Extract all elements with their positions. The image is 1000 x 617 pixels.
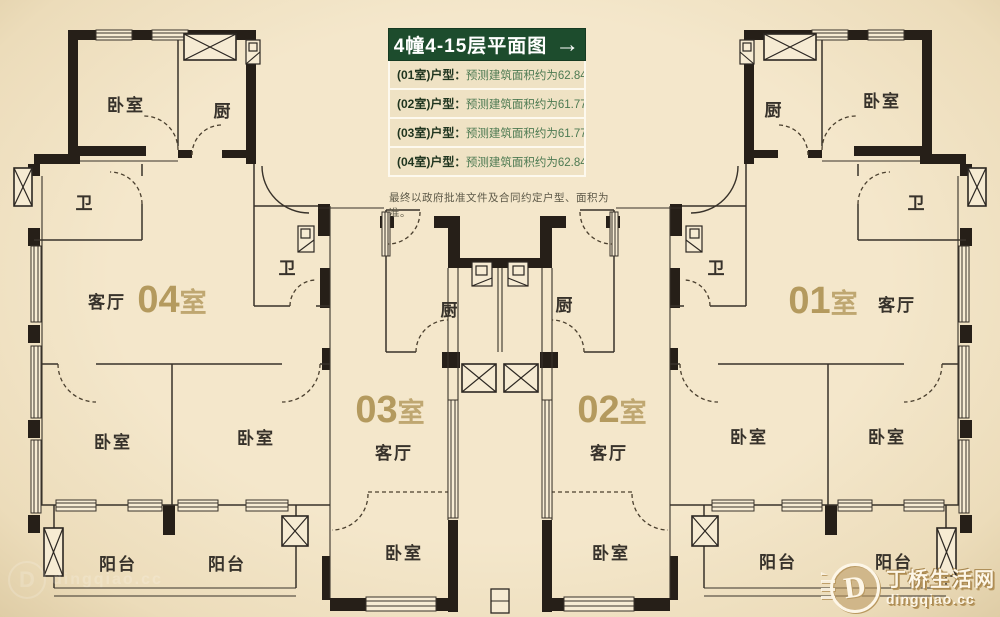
unit-area-value: 预测建筑面积约为61.77M² (466, 125, 586, 141)
colon: ： (454, 125, 466, 141)
room-label: 厨 (214, 102, 233, 121)
arrow-right-icon: → (555, 33, 580, 57)
room-label: 卧室 (94, 432, 132, 452)
room-label: 厨 (441, 301, 460, 320)
faint-watermark: D dingqiao.cc (8, 561, 163, 599)
sun-rays-icon (821, 572, 835, 604)
unit-label-02: 02室 (577, 389, 646, 431)
unit-label-03: 03室 (355, 389, 424, 431)
room-label: 厨 (765, 101, 784, 120)
unit-area-label: (03室)户型 (397, 124, 454, 141)
unit-area-label: (04室)户型 (397, 153, 454, 170)
colon: ： (454, 154, 466, 170)
legend-panel: 4幢4-15层平面图 → (01室)户型：预测建筑面积约为62.84M² (02… (388, 28, 586, 177)
stair-core (491, 589, 509, 613)
room-label: 卫 (908, 194, 927, 213)
room-label: 客厅 (87, 292, 126, 312)
unit-area-label: (02室)户型 (397, 95, 454, 112)
side-shaft-icon (14, 168, 32, 206)
room-label: 客厅 (589, 443, 628, 463)
site-name: 丁桥生活网 (886, 570, 996, 590)
inner-shaft-icon (282, 516, 308, 546)
logo-letter: D (842, 570, 868, 607)
unit-area-row: (03室)户型：预测建筑面积约为61.77M² (388, 119, 586, 148)
room-label: 卧室 (107, 95, 145, 115)
site-logo-icon: D (830, 563, 880, 613)
site-url: dingqiao.cc (886, 592, 996, 606)
floorplan-page: 卧室厨卫客厅卧室卧室阳台阳台卫厨客厅卧室厨卫客厅卧室厨卧室卫客厅卧室卧室阳台阳台… (0, 0, 1000, 617)
unit-area-row: (02室)户型：预测建筑面积约为61.77M² (388, 90, 586, 119)
room-label: 卫 (279, 259, 298, 278)
room-label: 卧室 (237, 428, 275, 448)
room-label: 阳台 (208, 554, 246, 574)
room-label: 客厅 (877, 295, 916, 315)
unit-area-row: (01室)户型：预测建筑面积约为62.84M² (388, 61, 586, 90)
unit-label-04: 04室 (137, 279, 206, 321)
faint-logo-icon: D (8, 561, 46, 599)
unit-area-label: (01室)户型 (397, 66, 454, 83)
unit-label-01: 01室 (788, 280, 857, 322)
unit-area-value: 预测建筑面积约为62.84M² (466, 67, 586, 83)
room-label: 卫 (76, 194, 95, 213)
door-icon (298, 226, 314, 252)
colon: ： (454, 96, 466, 112)
room-label: 卧室 (868, 427, 906, 447)
unit-area-row: (04室)户型：预测建筑面积约为62.84M² (388, 148, 586, 177)
disclaimer-text: 最终以政府批准文件及合同约定户型、面积为准。 (389, 190, 609, 220)
door-swing-arcs (58, 116, 448, 530)
unit-area-value: 预测建筑面积约为62.84M² (466, 154, 586, 170)
room-label: 卧室 (730, 427, 768, 447)
faint-site-url: dingqiao.cc (52, 571, 163, 589)
duct-shaft-icon (184, 34, 236, 60)
room-label: 阳台 (759, 552, 797, 572)
plan-title: 4幢4-15层平面图 (394, 31, 548, 58)
room-label: 卧室 (385, 543, 423, 563)
room-label: 客厅 (374, 443, 413, 463)
room-label: 卧室 (592, 543, 630, 563)
room-label: 卫 (708, 259, 727, 278)
door-icon (472, 262, 492, 286)
colon: ： (454, 67, 466, 83)
elevator-icon (462, 364, 496, 392)
site-watermark: D 丁桥生活网 dingqiao.cc (830, 563, 996, 613)
plan-title-bar: 4幢4-15层平面图 → (388, 28, 586, 61)
unit-area-value: 预测建筑面积约为61.77M² (466, 96, 586, 112)
room-label: 厨 (556, 296, 575, 315)
room-label: 卧室 (863, 91, 901, 111)
door-icon (246, 40, 260, 64)
